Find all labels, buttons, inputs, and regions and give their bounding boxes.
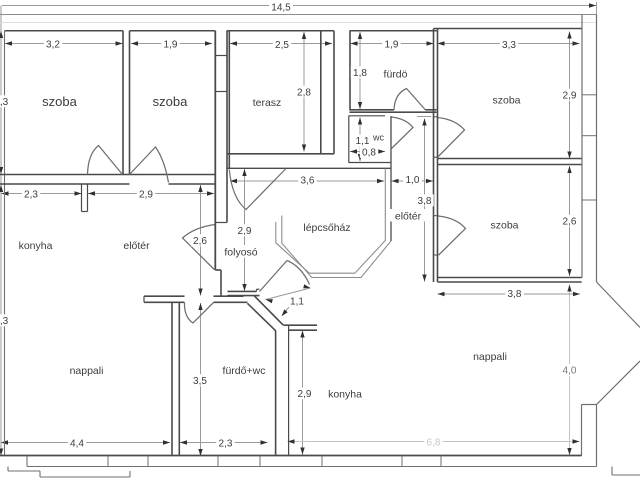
svg-text:szoba: szoba xyxy=(490,219,518,231)
svg-text:fürdö: fürdö xyxy=(384,68,408,80)
svg-text:,3: ,3 xyxy=(0,97,9,108)
svg-text:2,9: 2,9 xyxy=(563,91,577,102)
svg-text:3,5: 3,5 xyxy=(193,376,207,387)
svg-text:szoba: szoba xyxy=(492,94,520,106)
svg-text:4,4: 4,4 xyxy=(70,439,84,450)
svg-text:1,8: 1,8 xyxy=(353,68,367,79)
svg-text:1,9: 1,9 xyxy=(385,40,399,51)
svg-text:konyha: konyha xyxy=(19,240,53,252)
svg-text:2,3: 2,3 xyxy=(219,439,233,450)
svg-text:folyosó: folyosó xyxy=(224,246,257,258)
svg-text:2,9: 2,9 xyxy=(238,226,252,237)
svg-text:1,0: 1,0 xyxy=(406,175,420,186)
svg-text:szoba: szoba xyxy=(42,94,77,109)
svg-text:fürdő+wc: fürdő+wc xyxy=(223,365,266,377)
svg-text:3,8: 3,8 xyxy=(508,289,522,300)
svg-text:3,6: 3,6 xyxy=(301,176,315,187)
svg-text:0,8: 0,8 xyxy=(362,148,376,159)
svg-text:nappali: nappali xyxy=(473,351,507,363)
svg-text:2,6: 2,6 xyxy=(563,217,577,228)
svg-text:1,1: 1,1 xyxy=(356,136,370,147)
svg-text:2,9: 2,9 xyxy=(298,389,312,400)
svg-text:3,8: 3,8 xyxy=(418,196,432,207)
svg-text:6,8: 6,8 xyxy=(427,438,441,449)
svg-text:14,5: 14,5 xyxy=(271,3,291,14)
svg-text:előtér: előtér xyxy=(123,240,150,252)
svg-text:4,0: 4,0 xyxy=(563,366,577,377)
svg-text:2,8: 2,8 xyxy=(297,88,311,99)
svg-text:terasz: terasz xyxy=(253,97,282,109)
svg-text:konyha: konyha xyxy=(328,388,362,400)
svg-text:előtér: előtér xyxy=(395,210,422,222)
svg-text:1,1: 1,1 xyxy=(290,297,304,308)
svg-text:2,6: 2,6 xyxy=(193,236,207,247)
svg-text:2,9: 2,9 xyxy=(139,190,153,201)
svg-text:1,9: 1,9 xyxy=(164,40,178,51)
svg-text:szoba: szoba xyxy=(153,94,188,109)
svg-text:3,2: 3,2 xyxy=(46,40,60,51)
svg-text:nappali: nappali xyxy=(70,365,104,377)
svg-text:lépcsőház: lépcsőház xyxy=(303,222,350,234)
svg-text:2,3: 2,3 xyxy=(24,190,38,201)
svg-text:wc: wc xyxy=(372,133,384,143)
svg-text:2,5: 2,5 xyxy=(275,40,289,51)
svg-text:3,3: 3,3 xyxy=(502,40,516,51)
svg-text:,3: ,3 xyxy=(0,316,9,327)
